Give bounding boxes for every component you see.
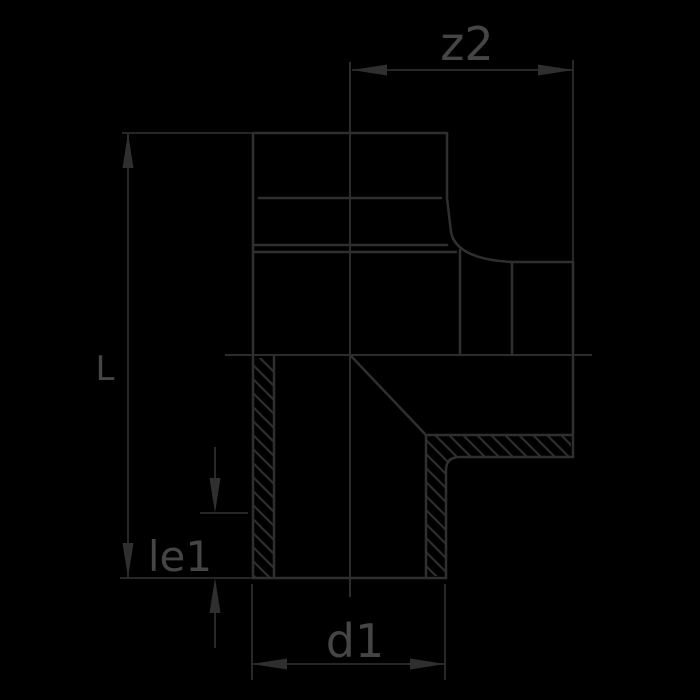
fitting-section-drawing: z2 L le1 — [0, 0, 700, 700]
z2-label: z2 — [440, 17, 493, 71]
d1-label: d1 — [326, 614, 384, 668]
hatch-left-wall — [254, 358, 274, 577]
technical-drawing-page: z2 L le1 — [0, 0, 700, 700]
le1-label: le1 — [148, 532, 212, 581]
L-label: L — [96, 349, 115, 389]
